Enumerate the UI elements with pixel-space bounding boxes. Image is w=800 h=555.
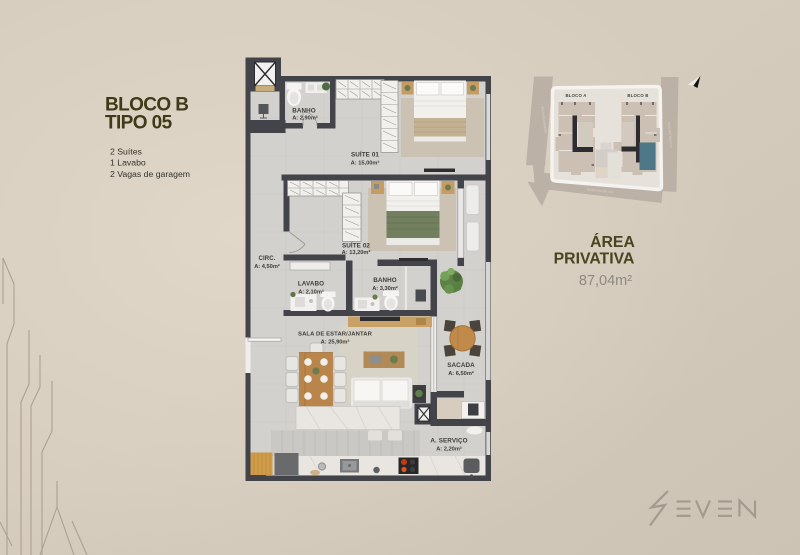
svg-text:SACADA: SACADA: [447, 362, 475, 369]
svg-text:ÁREA: ÁREA: [590, 232, 635, 251]
svg-text:TIPO 05: TIPO 05: [105, 113, 173, 134]
svg-text:A: 13,20m²: A: 13,20m²: [342, 249, 371, 256]
svg-text:A: 2,20m²: A: 2,20m²: [436, 446, 462, 453]
svg-text:1 Lavabo: 1 Lavabo: [110, 158, 146, 168]
svg-text:2 Suítes: 2 Suítes: [110, 146, 143, 156]
svg-text:PRIVATIVA: PRIVATIVA: [554, 251, 635, 268]
svg-text:SUÍTE 01: SUÍTE 01: [351, 150, 379, 159]
svg-text:A: 6,50m²: A: 6,50m²: [448, 370, 474, 377]
svg-text:2 Vagas de garagem: 2 Vagas de garagem: [110, 169, 190, 179]
svg-text:SALA DE ESTAR/JANTAR: SALA DE ESTAR/JANTAR: [298, 332, 373, 338]
svg-text:A: 15,00m²: A: 15,00m²: [351, 160, 380, 167]
svg-text:A: 3,30m²: A: 3,30m²: [372, 285, 398, 292]
svg-text:BANHO: BANHO: [373, 277, 397, 284]
svg-text:LAVABO: LAVABO: [298, 281, 324, 288]
svg-text:87,04m²: 87,04m²: [579, 273, 632, 289]
svg-text:CIRC.: CIRC.: [258, 255, 275, 262]
svg-text:BANHO: BANHO: [292, 107, 316, 114]
svg-text:A. SERVIÇO: A. SERVIÇO: [430, 438, 467, 445]
svg-text:BLOCO B: BLOCO B: [627, 93, 648, 98]
svg-text:A: 25,90m²: A: 25,90m²: [321, 339, 350, 346]
svg-text:A: 2,90m²: A: 2,90m²: [292, 115, 318, 122]
svg-text:SUÍTE 02: SUÍTE 02: [342, 241, 370, 250]
svg-text:BLOCO A: BLOCO A: [565, 93, 586, 98]
svg-text:A: 2,10m²: A: 2,10m²: [298, 289, 324, 296]
svg-text:A: 4,50m²: A: 4,50m²: [254, 263, 280, 270]
